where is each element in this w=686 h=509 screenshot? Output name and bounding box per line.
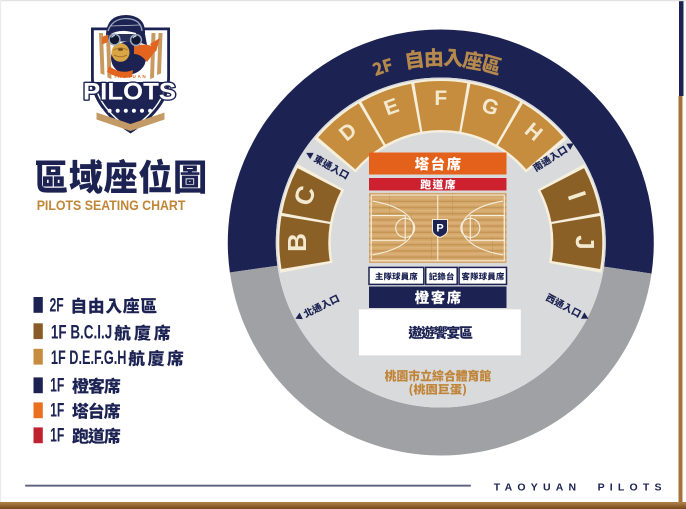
svg-text:TAOYUAN PILOTS: TAOYUAN PILOTS bbox=[494, 482, 667, 494]
svg-text:PILOTS: PILOTS bbox=[83, 79, 176, 106]
svg-text:B: B bbox=[282, 233, 312, 252]
svg-text:PILOTS SEATING CHART: PILOTS SEATING CHART bbox=[37, 197, 186, 213]
svg-text:1F: 1F bbox=[50, 426, 64, 447]
svg-text:1F B.C.I.J: 1F B.C.I.J bbox=[51, 323, 112, 344]
svg-text:F: F bbox=[434, 87, 447, 110]
svg-text:1F D.E.F.G.H: 1F D.E.F.G.H bbox=[51, 348, 127, 369]
svg-text:2F: 2F bbox=[50, 296, 64, 317]
svg-text:1F: 1F bbox=[50, 401, 64, 422]
svg-text:1F: 1F bbox=[50, 376, 64, 397]
svg-text:P: P bbox=[436, 223, 443, 235]
svg-text:J: J bbox=[570, 235, 600, 249]
